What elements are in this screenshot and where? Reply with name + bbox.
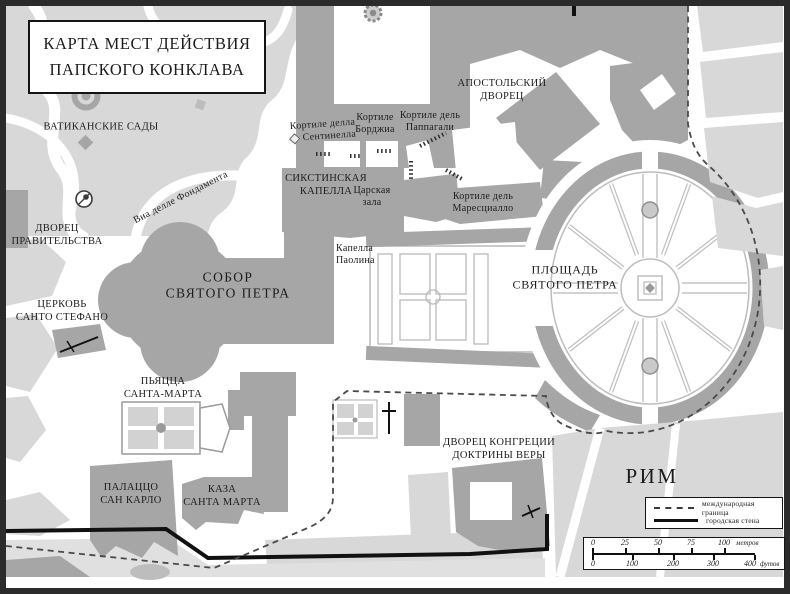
- label-rome: РИМ: [625, 464, 678, 490]
- legend-row-border: международная граница: [654, 502, 776, 514]
- palazzo-san-carlo-building: [90, 460, 178, 558]
- piazza-santa-marta-garden: [122, 402, 230, 454]
- title-line1: КАРТА МЕСТ ДЕЙСТВИЯ: [30, 31, 264, 57]
- solid-line-sample: [654, 519, 698, 522]
- label-cortile-borgia: Кортиле Борджиа: [355, 112, 395, 136]
- title-line2: ПАПСКОГО КОНКЛАВА: [30, 57, 264, 83]
- label-royal-hall: Царская зала: [354, 185, 391, 209]
- legend-row-wall: городская стена: [654, 514, 776, 526]
- label-congregation-palace: ДВОРЕЦ КОНГРЕЦИИ ДОКТРИНЫ ВЕРЫ: [443, 437, 555, 463]
- label-casa-santa-marta: КАЗА САНТА МАРТА: [183, 484, 260, 510]
- label-st-peters-square: ПЛОЩАДЬ СВЯТОГО ПЕТРА: [512, 262, 617, 291]
- legend: международная граница городская стена: [645, 497, 783, 529]
- small-courtyard-garden: [333, 400, 377, 438]
- label-government-palace: ДВОРЕЦ ПРАВИТЕЛЬСТВА: [11, 223, 102, 249]
- label-vatican-gardens: ВАТИКАНСКИЕ САДЫ: [44, 122, 159, 135]
- label-cortile-sentinella: Кортиле делла Сентинелла: [289, 117, 356, 146]
- courtyard-marker-icon: [289, 133, 300, 144]
- label-cortile-pappagali: Кортиле дель Паппагали: [400, 110, 460, 134]
- label-apostolic-palace: АПОСТОЛЬСКИЙ ДВОРЕЦ: [458, 78, 547, 104]
- label-piazza-santa-marta: ПЬЯЦЦА САНТА-МАРТА: [124, 376, 202, 402]
- label-palazzo-san-carlo: ПАЛАЦЦО САН КАРЛО: [100, 482, 161, 508]
- label-santo-stefano: ЦЕРКОВЬ САНТО СТЕФАНО: [16, 299, 108, 325]
- south-fountain-icon: [642, 358, 658, 374]
- cortile-borgia-courtyard: [366, 141, 398, 167]
- scale-bar: 0 25 50 75 100 метров 0 100 200 300 400 …: [583, 537, 785, 570]
- north-fountain-icon: [642, 202, 658, 218]
- label-pauline-chapel: Капелла Паолина: [336, 243, 375, 267]
- label-st-peters-basilica: СОБОР СВЯТОГО ПЕТРА: [166, 270, 291, 303]
- map-title: КАРТА МЕСТ ДЕЙСТВИЯ ПАПСКОГО КОНКЛАВА: [28, 20, 266, 94]
- label-cortile-maresciallo: Кортиле дель Маресциалло: [453, 191, 514, 215]
- conclave-map: { "title": {"line1": "КАРТА МЕСТ ДЕЙСТВИ…: [0, 0, 790, 594]
- dashed-line-sample: [654, 507, 694, 509]
